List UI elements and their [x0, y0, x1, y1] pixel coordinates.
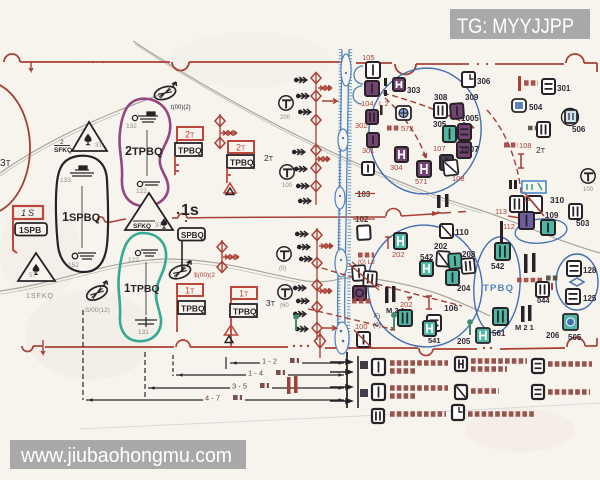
svg-text:TG: MYYJJPP: TG: MYYJJPP — [457, 15, 574, 38]
svg-text:www.jiubaohongmu.com: www.jiubaohongmu.com — [20, 445, 232, 467]
